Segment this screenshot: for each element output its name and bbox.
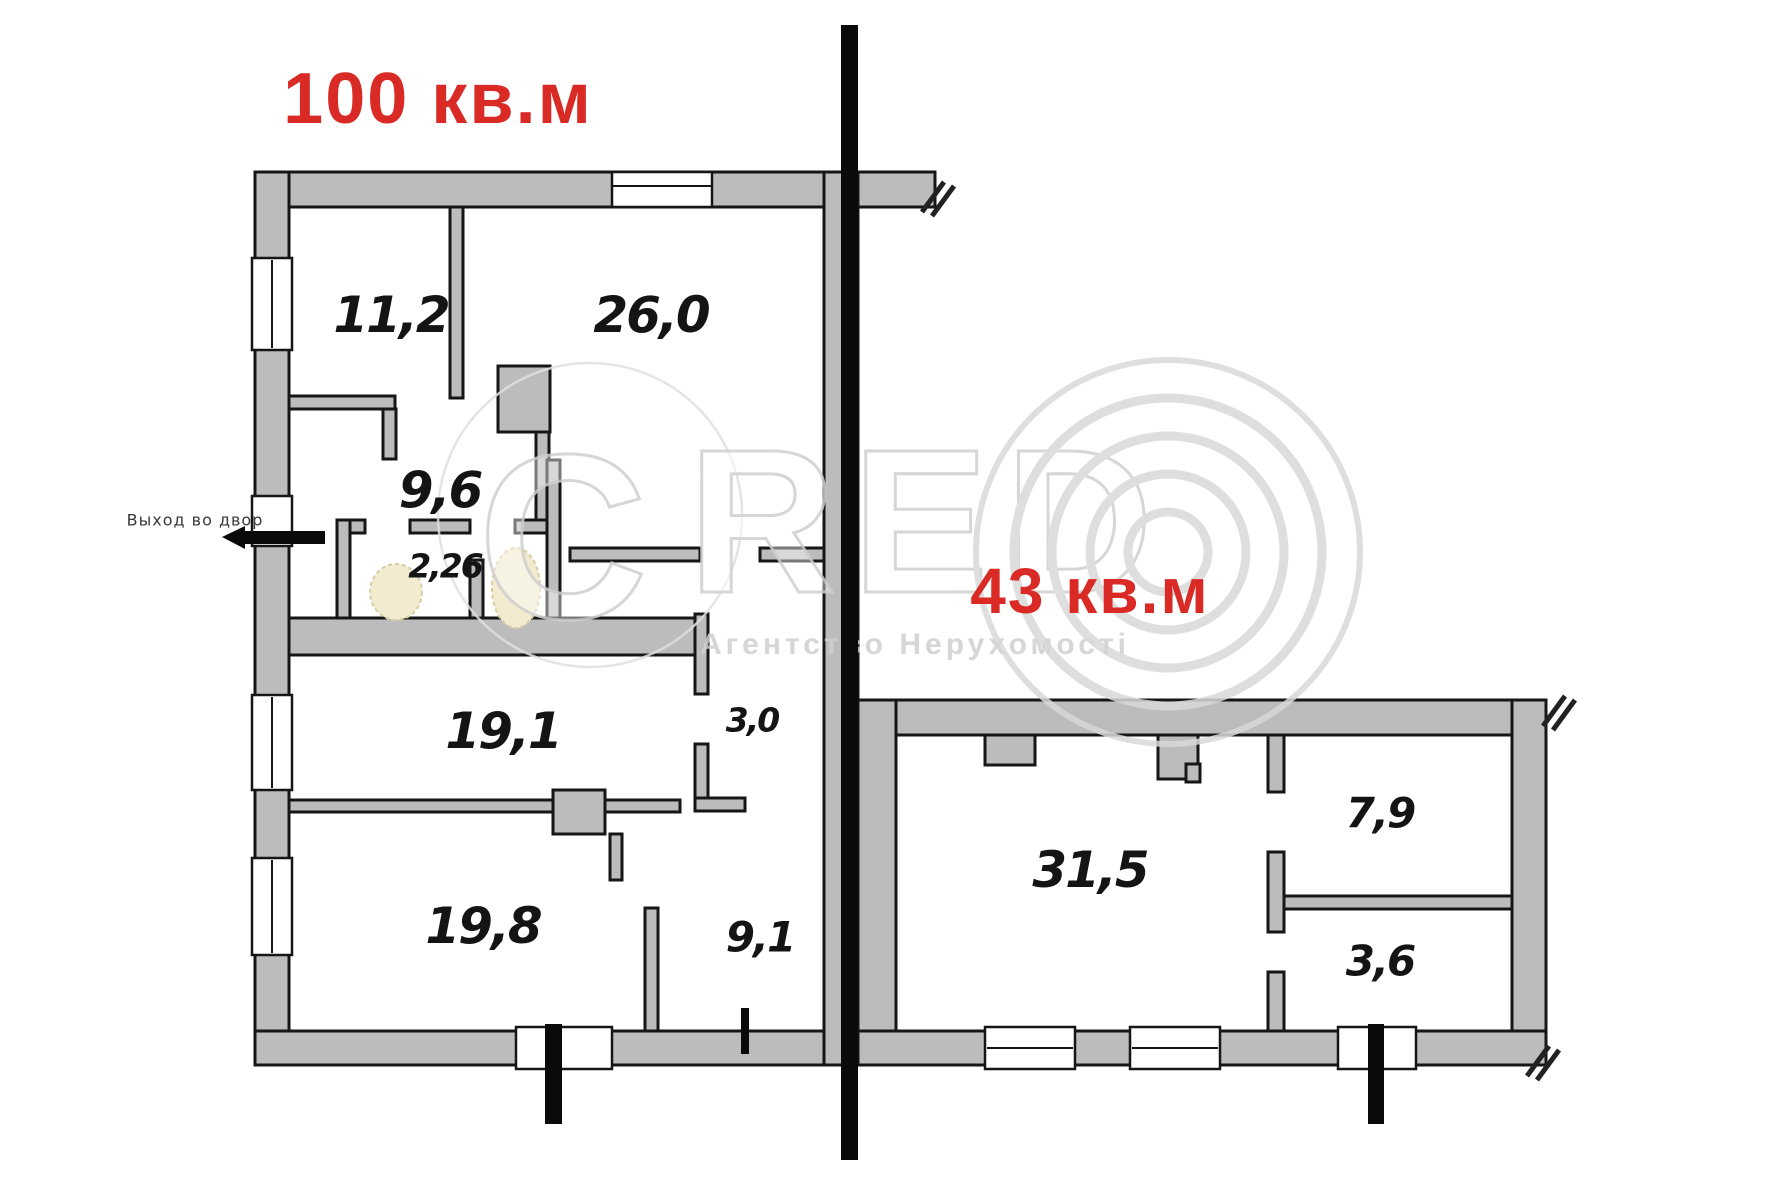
watermark: C RED Агентство Нерухомості [438, 360, 1360, 744]
room-label-31-5: 31,5 [1032, 841, 1147, 899]
left-apartment-area-label: 100 кв.м [283, 58, 593, 140]
wall-19-1-bottom [289, 800, 680, 812]
pilaster-1 [985, 735, 1035, 765]
photo-split-line [841, 25, 858, 1160]
room-label-9-6: 9,6 [399, 461, 482, 519]
wall-31-east-b [1268, 852, 1284, 932]
wall-below-11 [289, 396, 395, 409]
wall-79-36-divider [1284, 896, 1512, 909]
room-label-11-2: 11,2 [333, 286, 448, 344]
break-mark-right-top-wall [1543, 696, 1575, 730]
watermark-subtitle: Агентство Нерухомості [700, 628, 1130, 661]
room-label-3-0: 3,0 [726, 701, 778, 740]
door-jamb-mark-9-1 [741, 1008, 749, 1054]
entrance-door-mark-right [1368, 1024, 1384, 1124]
heater-block [553, 790, 605, 834]
room-label-19-1: 19,1 [445, 702, 560, 760]
wall-partition-11-26 [450, 207, 463, 398]
wall-31-east-a [1268, 735, 1284, 792]
wall-31-east-c [1268, 972, 1284, 1031]
room-label-9-1: 9,1 [726, 913, 794, 962]
floor-plan: C RED Агентство Нерухомості [0, 0, 1772, 1181]
exit-to-yard-label: Выход во двор [127, 511, 264, 530]
wall-wc-west [337, 520, 350, 620]
pilaster-2-hook [1186, 764, 1200, 782]
heater-stem [610, 834, 622, 880]
door-opening-left-bottom [516, 1027, 612, 1069]
wall-corridor-b [695, 744, 708, 804]
wall-stub-hall [383, 409, 396, 459]
wall-right-east [1512, 700, 1546, 1065]
wall-right-west [858, 700, 896, 1065]
watermark-letter-c: C [478, 405, 648, 668]
wall-corridor-stub [695, 798, 745, 811]
wall-19-8-east [645, 908, 658, 1031]
window-top [612, 172, 712, 207]
floor-plan-drawing: C RED Агентство Нерухомості [0, 0, 1772, 1181]
room-label-2-26: 2,26 [408, 547, 481, 586]
right-apartment-area-label: 43 кв.м [970, 554, 1209, 628]
entrance-door-mark-left [545, 1024, 562, 1124]
room-label-26-0: 26,0 [593, 286, 708, 344]
room-label-7-9: 7,9 [1346, 789, 1414, 838]
room-label-3-6: 3,6 [1346, 937, 1414, 986]
room-label-19-8: 19,8 [425, 897, 540, 955]
